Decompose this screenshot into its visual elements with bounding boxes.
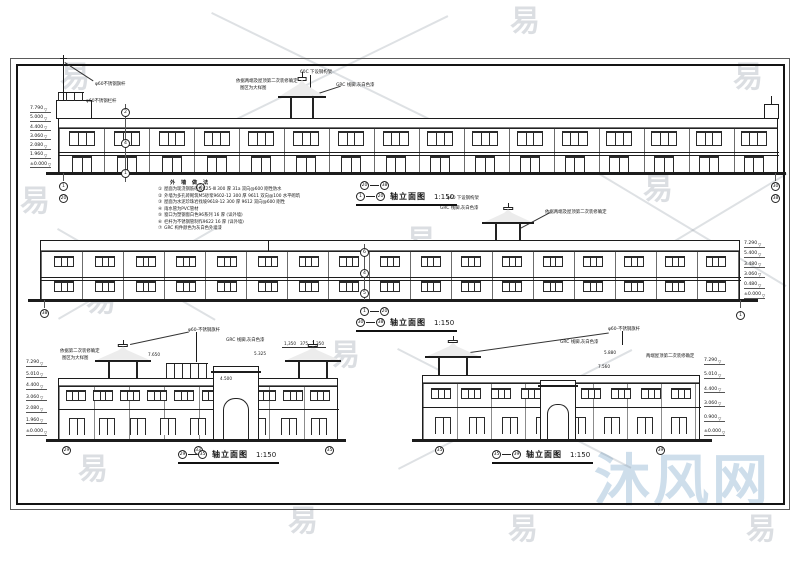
dim-text: 375 [300,341,308,346]
drawing-title-3: 2935 轴立面图 1:150 [178,449,279,464]
annotation-grc: GRC 线脚,灰白色漆 [440,206,478,211]
upper-window [562,131,588,146]
upper-window [383,131,409,146]
upper-window [120,390,140,401]
arch-opening [223,398,249,439]
axis-bubble: 39 [656,446,665,455]
leader-line [622,331,623,345]
upper-window [176,256,196,267]
watermark-glyph: 易 [746,504,776,548]
annotation-fitout2: 图区为大样图 [62,356,88,361]
dim-text: 7.560 [598,364,610,369]
axis-bubble: 38 [40,309,49,318]
door-row-lower [60,156,776,172]
annotation-grc: GRC 线脚,灰白色漆 [226,338,264,343]
lower-window [176,281,196,292]
lower-window [299,281,319,292]
upper-window [583,256,603,267]
axis-bubble: 30 [771,182,780,191]
upper-window [517,131,543,146]
upper-window [427,131,453,146]
parapet-line [538,385,578,387]
axis-bubble: 1 [360,307,369,316]
title-scale: 1:150 [256,451,276,459]
upper-window [606,131,632,146]
dim-text: 5.880 [604,350,616,355]
ground-line [46,172,786,175]
storefront-door [430,156,450,172]
annotation-fitout: 依据第二次装修确定 [60,349,100,354]
center-gate [540,380,576,440]
annotation-rail: φ60不锈钢栏杆 [86,99,116,104]
upper-window [521,388,541,399]
level-mark: 5.010▽ [26,372,47,379]
axis-tick [63,173,64,181]
note-item: ⑤窗口为塑钢窗白色96系列 16 厚 (详外墙) [158,213,396,218]
level-mark: 3.060▽ [26,395,47,402]
axis-bubble: 35 [492,450,501,459]
parapet-step [268,241,269,251]
level-mark: 4.400▽ [26,383,47,390]
axis-bubble: 38 [771,194,780,203]
axis-bubble: 20 [360,181,369,190]
level-mark: 7.290▽ [26,360,47,367]
storefront-door [565,156,585,172]
lower-window [671,417,687,434]
lower-window [469,417,485,434]
upper-window [502,256,522,267]
lower-window [54,281,74,292]
axis-bubble: 29 [62,446,71,455]
axis-bubble-right: 1 [736,311,745,320]
upper-window [624,256,644,267]
axis-bubble: 4 [121,139,130,148]
upper-window [543,256,563,267]
upper-window [293,131,319,146]
upper-window [136,256,156,267]
lower-window [543,281,563,292]
lower-window [69,418,85,435]
lower-window [435,417,451,434]
upper-window [69,131,95,146]
title-text: 轴立面图 [526,449,562,460]
arch-opening [547,404,569,439]
tower-body [298,361,327,378]
title-text: 轴立面图 [212,449,248,460]
annotation-steel: φ60 下设钢构架 [447,196,479,201]
axis-bubble-left: 38 [40,309,49,318]
level-column: 7.290▽5.010▽4.400▽3.060▽2.080▽1.960▽±0.0… [26,360,47,436]
axis-bubble: 20 [380,307,389,316]
level-mark: 4.400▽ [30,125,51,132]
lower-window [461,281,481,292]
annotation-fitout2: 图区为大样图 [240,86,266,91]
axis-bubbles-left: 120 [59,182,68,203]
lower-window [136,281,156,292]
title-row: 2935 轴立面图 1:150 [178,449,279,464]
window-row-lower [62,418,334,438]
window-row-upper [44,256,736,268]
pavilion-tower [427,336,479,375]
lower-window [311,418,327,435]
title-text: 轴立面图 [390,191,426,202]
axis-bubble: 30 [356,318,365,327]
level-mark: 7.290▽ [704,358,725,365]
window-row-upper [62,390,334,403]
axis-bubble: 29 [178,450,187,459]
lower-window [706,281,726,292]
storefront-door [162,156,182,172]
storefront-door [744,156,764,172]
level-mark: 3.060▽ [704,401,725,408]
annotation-flag: φ60不锈钢旗杆 [95,82,125,87]
level-mark: 0.480▽ [744,282,765,289]
upper-window [651,131,677,146]
dim-text: 5.325 [254,351,266,356]
tower-body [495,223,522,240]
pavilion-tower [484,203,532,240]
upper-window [217,256,237,267]
annotation-fitout: 依据两端及屋顶第二次装修确定 [236,79,297,84]
storefront-door [475,156,495,172]
title-row: 120 轴立面图 1:150 [356,191,457,206]
lower-window [190,418,206,435]
level-column: 7.290▽5.010▽4.400▽3.060▽0.900▽±0.000▽ [704,358,725,436]
watermark-glyph: 易 [510,0,540,40]
flagpole-tick [60,58,67,59]
level-mark: 5.010▽ [704,372,725,379]
dash [366,196,375,197]
upper-window [611,388,631,399]
storefront-door [520,156,540,172]
level-mark: ±0.000▽ [744,292,765,299]
axis-tick [775,173,776,181]
level-mark: 2.080▽ [30,143,51,150]
lower-window [421,281,441,292]
storefront-door [296,156,316,172]
lower-window [502,281,522,292]
axis-bubble: 35 [435,446,444,455]
title-scale: 1:150 [570,451,590,459]
axis-bubble: 6 [360,248,369,257]
upper-window [665,256,685,267]
annotation-grc: GRC 线脚,灰白色漆 [336,83,374,88]
upper-window [706,256,726,267]
axis-range: 2038 [360,181,457,190]
dim-text: 1,350 [284,341,296,346]
level-column: 7.790▽5.000▽4.400▽3.060▽2.080▽1.960▽±0.0… [30,106,51,168]
drawing-title-2: 120 3038 轴立面图 1:150 [356,307,457,332]
upper-window [147,390,167,401]
axis-bubble: 1 [59,182,68,191]
upper-window [310,390,330,401]
annotation-flag: φ60-不锈钢旗杆 [188,328,220,333]
storefront-door [699,156,719,172]
pagoda-roof [287,346,339,359]
level-mark: 5.000▽ [30,115,51,122]
upper-window [338,131,364,146]
upper-window [299,256,319,267]
upper-window [491,388,511,399]
upper-window [93,390,113,401]
axis-tick [44,300,45,308]
window-row-upper [60,131,776,146]
title-text: 轴立面图 [390,317,426,328]
storefront-door [251,156,271,172]
drawing-sheet: 易 易 易 易 易 易 易 易 易 易 易 易 沐风网 φ60不锈钢旗杆 φ60… [0,0,800,567]
level-mark: 0.900▽ [704,415,725,422]
axis-bubble: 20 [59,194,68,203]
lower-window [380,281,400,292]
tower-body [108,361,137,378]
axis-bubble: 1 [736,311,745,320]
level-mark: 3.060▽ [744,272,765,279]
axis-bubble: 35 [198,450,207,459]
axis-bubbles-right: 3038 [771,182,780,203]
level-mark: 7.290▽ [744,241,765,248]
storefront-door [654,156,674,172]
lower-window [604,417,620,434]
upper-window [581,388,601,399]
upper-window [421,256,441,267]
level-column: 7.290▽5.400▽3.480▽3.060▽0.480▽±0.000▽ [744,241,765,299]
title-row: 3539 轴立面图 1:150 [492,449,593,464]
upper-window [204,131,230,146]
level-mark: ±0.000▽ [30,162,51,169]
lower-window [281,418,297,435]
title-scale: 1:150 [434,319,454,327]
floor-line [41,277,741,278]
upper-window [283,390,303,401]
axis-bubble: 2 [121,108,130,117]
note-item: ⑥栏杆为不锈钢管制作9622 16 厚 (详外墙) [158,220,396,225]
level-mark: 3.060▽ [30,134,51,141]
axis-range: 120 [360,307,457,316]
upper-window [472,131,498,146]
upper-window [54,256,74,267]
watermark-glyph: 易 [508,504,538,548]
upper-window [174,390,194,401]
pagoda-roof [427,343,479,357]
dim-text: 4.500 [220,376,232,381]
upper-window [339,256,359,267]
axis-bubble: 38 [380,181,389,190]
pavilion-tower [97,340,149,378]
upper-window [66,390,86,401]
dash [502,454,511,455]
dash [366,322,375,323]
level-mark: 1.960▽ [30,152,51,159]
level-mark: 1.960▽ [26,418,47,425]
storefront-door [341,156,361,172]
ground-line [46,439,346,442]
upper-window [461,256,481,267]
title-row: 3038 轴立面图 1:150 [356,317,457,332]
end-finial [771,96,772,104]
axis-bubble: 38 [376,318,385,327]
pagoda-roof [484,209,532,222]
upper-window [258,256,278,267]
floor-line [59,152,779,153]
upper-window [431,388,451,399]
lower-window [160,418,176,435]
tower-body [290,97,315,118]
floor-line [59,409,339,410]
upper-window [696,131,722,146]
axis-bubble: 4 [360,269,369,278]
storefront-door [72,156,92,172]
dash [188,454,197,455]
axis-bubble: 39 [512,450,521,459]
note-item: ⑦GRC 构件颜色为灰白色外墙漆 [158,226,396,231]
dim-text: 1,350 [312,341,324,346]
upper-window [741,131,767,146]
end-post [764,104,779,119]
level-mark: 4.400▽ [704,387,725,394]
annotation-steel: 60C 下设钢构架 [300,70,332,75]
dim-text: 7.650 [148,352,160,357]
lower-window [502,417,518,434]
level-mark: ±0.000▽ [704,429,725,436]
dash [370,185,379,186]
upper-window [641,388,661,399]
ref-bubbles: 645 [360,248,369,298]
axis-bubble: 5 [360,289,369,298]
annotation-flag: φ60-不锈钢旗杆 [608,327,640,332]
lower-window [130,418,146,435]
axis-bubble: 1 [356,192,365,201]
upper-window [95,256,115,267]
parapet-line [211,371,261,373]
axis-tick [740,300,741,308]
annotation-fitout: 两端屋顶第二次装修确定 [646,354,694,359]
lower-window [339,281,359,292]
ref-bubbles: 241 [121,108,130,178]
lower-window [95,281,115,292]
roof-railing [58,92,84,101]
axis-bubble: 1 [121,169,130,178]
storefront-door [386,156,406,172]
lower-window [583,281,603,292]
upper-window [159,131,185,146]
pagoda-roof [97,346,149,359]
window-row-lower [44,281,736,293]
note-item: ④雨水管为PVC管材 [158,207,396,212]
tower-body [438,357,467,375]
level-mark: 7.790▽ [30,106,51,113]
upper-window [380,256,400,267]
storefront-door [609,156,629,172]
lower-window [258,281,278,292]
level-mark: 5.400▽ [744,251,765,258]
drawing-title-4: 3539 轴立面图 1:150 [492,449,593,464]
annotation-fitout: 依据两端及屋顶第二次装修确定 [545,210,606,215]
upper-window [461,388,481,399]
annotation-grc: GRC 线脚,灰白色漆 [560,340,598,345]
level-mark: 2.080▽ [26,406,47,413]
lower-window [624,281,644,292]
lower-window [637,417,653,434]
axis-bubble: 35 [325,446,334,455]
dash [370,311,379,312]
level-mark: ±0.000▽ [26,429,47,436]
dim-chain: 1,350 375 1,350 [282,341,326,348]
lower-window [665,281,685,292]
ground-line [412,439,712,442]
axis-bubble: 20 [376,192,385,201]
storefront-door [207,156,227,172]
level-mark: 3.480▽ [744,262,765,269]
upper-window [248,131,274,146]
lower-window [99,418,115,435]
lower-window [217,281,237,292]
leader-line [196,332,197,362]
ground-line [28,299,758,302]
drawing-title-1: 2038 120 轴立面图 1:150 [356,181,457,206]
upper-window [671,388,691,399]
